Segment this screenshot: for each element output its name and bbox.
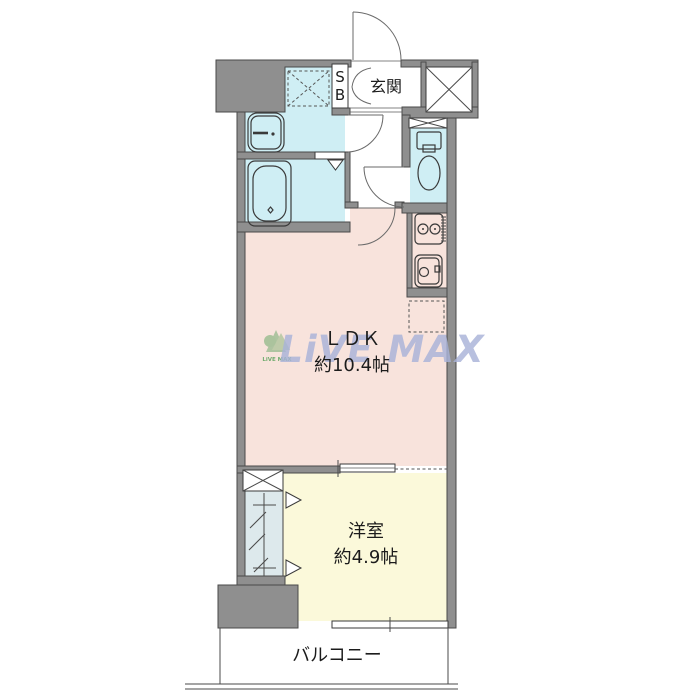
entrance-door (351, 12, 401, 61)
ldk-size-label: 約10.4帖 (314, 355, 390, 376)
entrance-label: 玄関 (370, 77, 402, 96)
shoe-box-label-s: S (335, 68, 345, 86)
floor-plan-svg: LiVE MAX LiVE MAX S B 玄関 ＬＤＫ 約10.4帖 洋室 約… (0, 0, 700, 700)
western-room-size-label: 約4.9帖 (334, 547, 399, 568)
balcony-label: バルコニー (292, 645, 382, 666)
toilet-door (364, 167, 404, 207)
ldk-label: ＬＤＫ (323, 328, 380, 350)
vent-box (409, 118, 447, 128)
floor-plan-image: LiVE MAX LiVE MAX S B 玄関 ＬＤＫ 約10.4帖 洋室 約… (0, 0, 700, 700)
shoe-box-label-b: B (335, 86, 345, 104)
western-room-label: 洋室 (348, 521, 384, 542)
shaft-x-box (426, 67, 472, 112)
washroom-door (348, 115, 383, 152)
pipe-space-box (243, 470, 283, 491)
genkan-step (350, 108, 402, 112)
